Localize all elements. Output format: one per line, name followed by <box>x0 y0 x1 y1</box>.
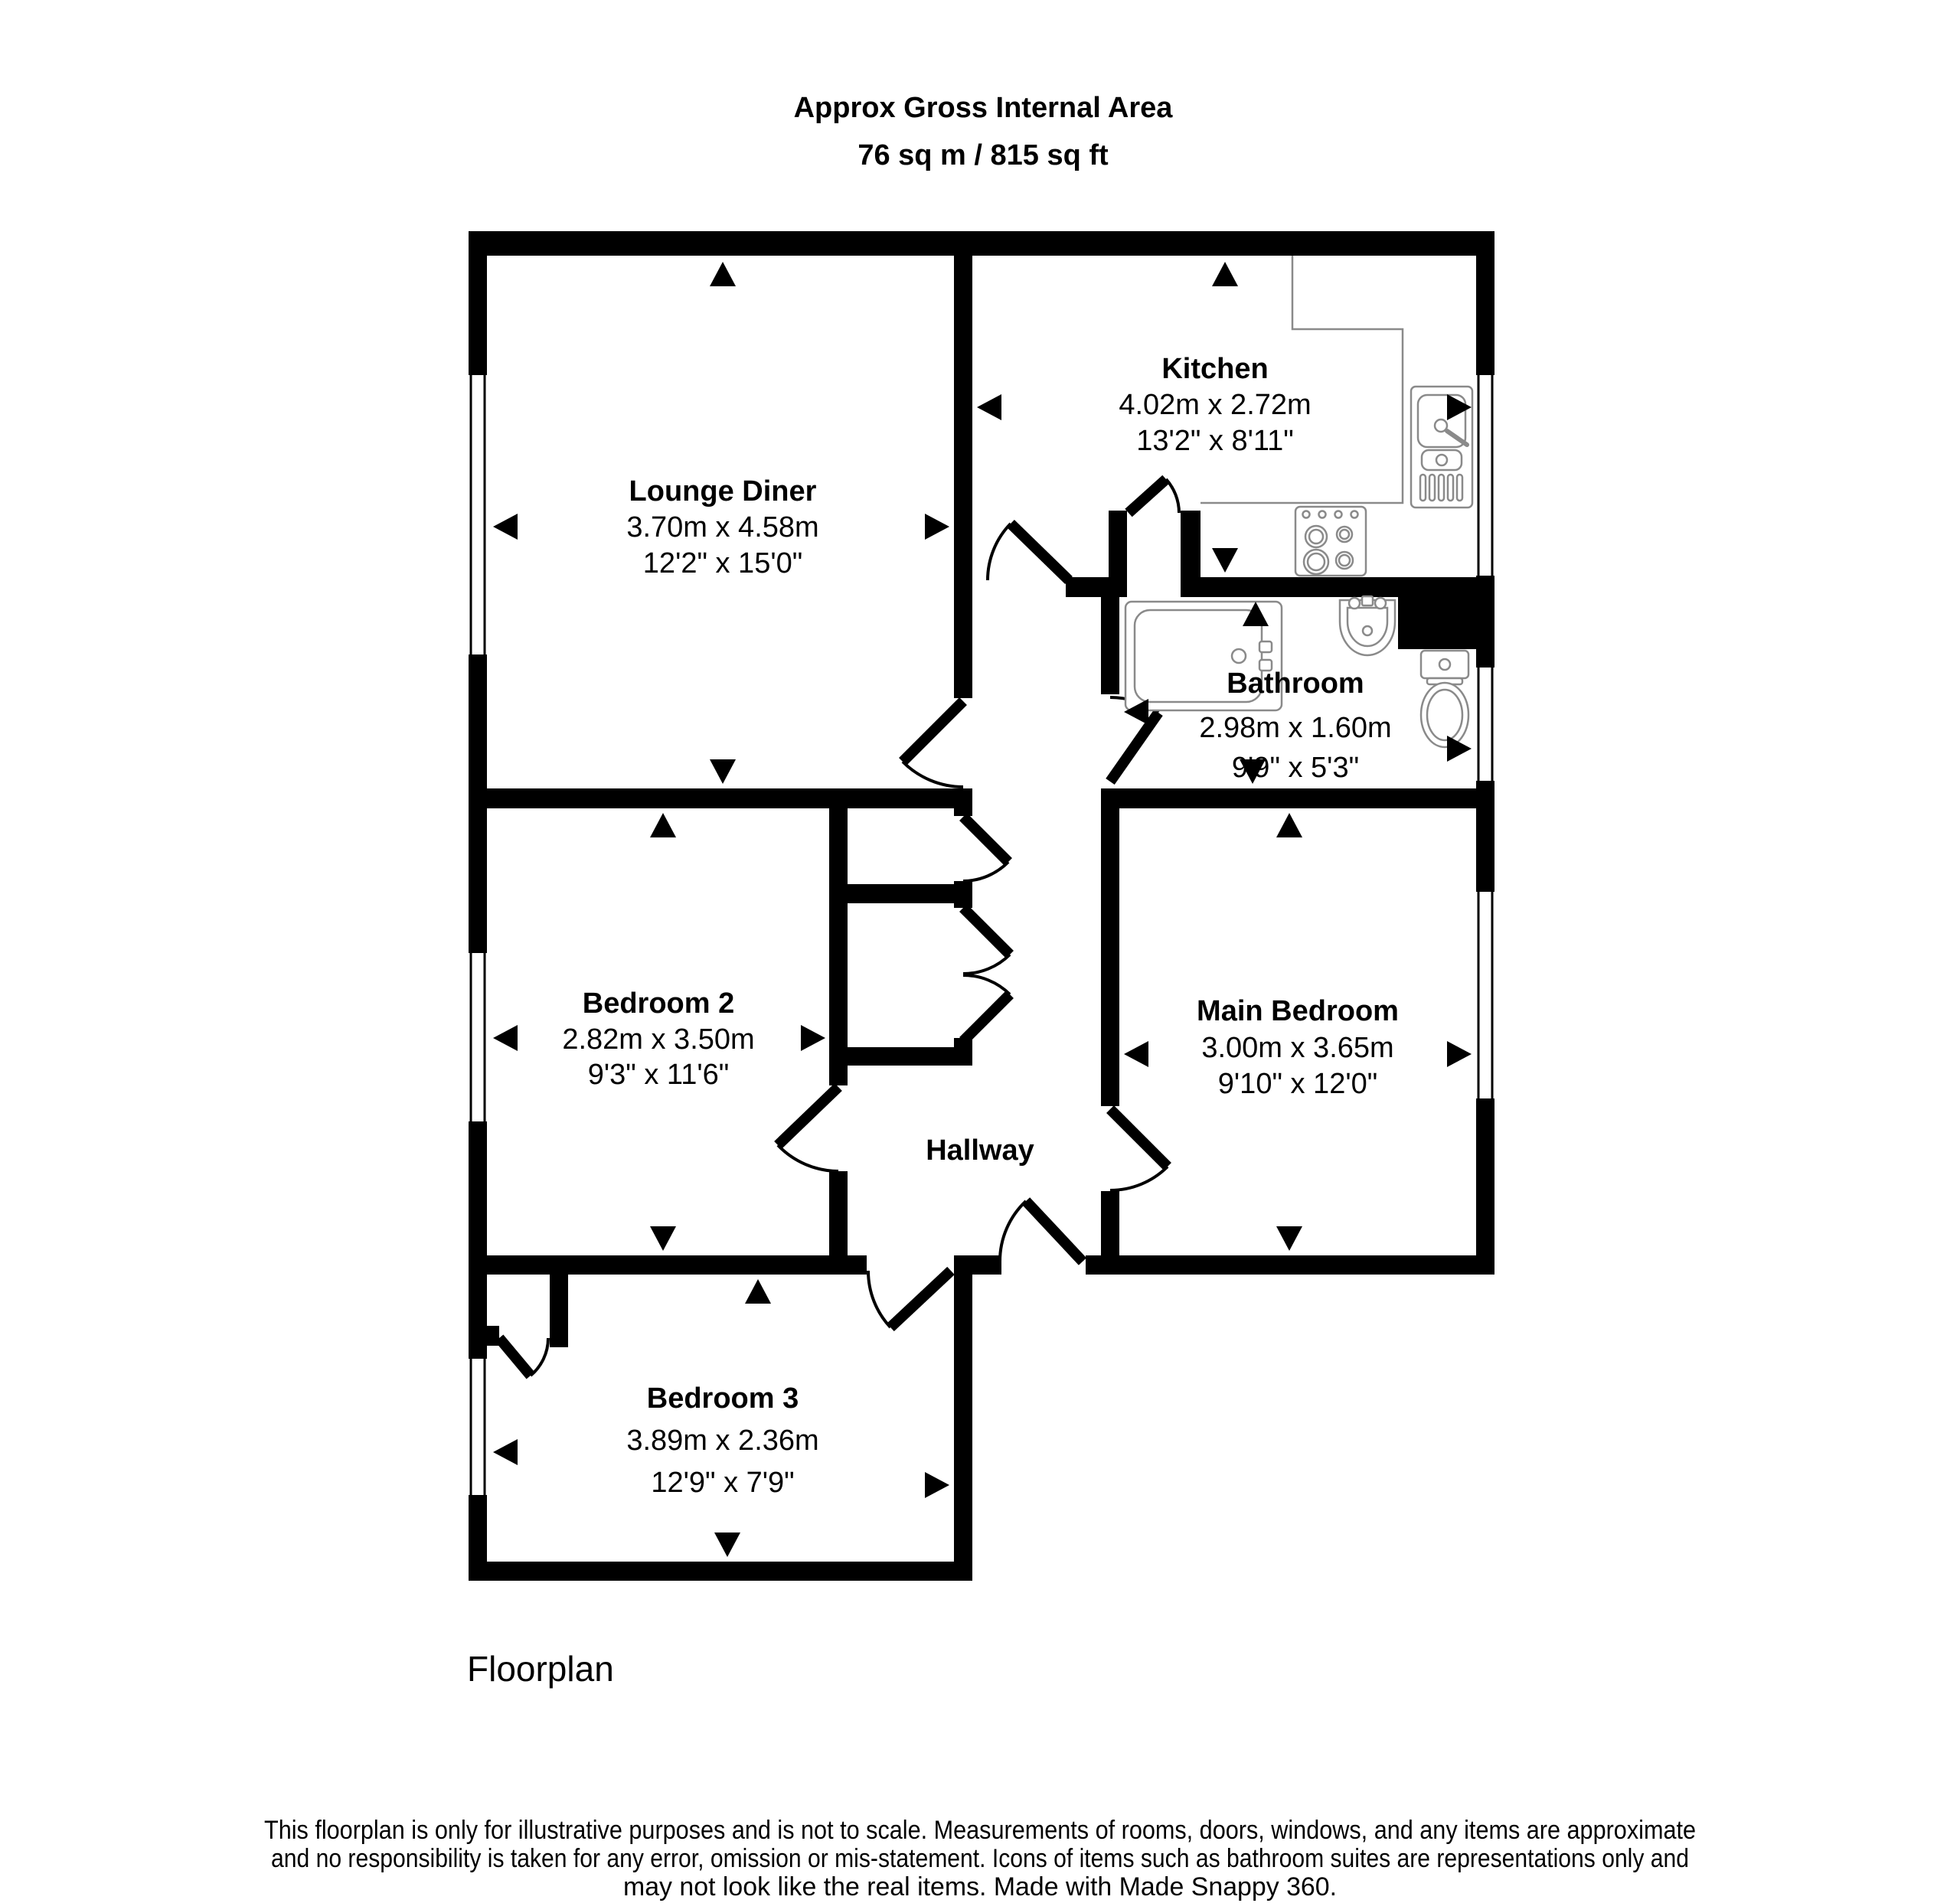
arrow-right-bedroom3 <box>925 1472 949 1498</box>
arrow-right-bedroom2 <box>801 1025 825 1051</box>
arrow-down-bedroom2 <box>650 1226 676 1251</box>
floorplan-canvas: Approx Gross Internal Area 76 sq m / 815… <box>0 0 1960 1903</box>
wall-mainbedroom-west-upper <box>1101 808 1119 1106</box>
room-label-bathroom: Bathroom <box>1227 668 1364 700</box>
window-kitchen <box>1476 375 1494 576</box>
arrow-right-main-bedroom <box>1447 1041 1472 1067</box>
wall-lounge-bottom <box>469 788 972 808</box>
toilet-icon <box>1421 651 1468 747</box>
arrow-left-bedroom2 <box>493 1025 518 1051</box>
room-metric-bathroom: 2.98m x 1.60m <box>1199 712 1391 744</box>
door-kitchen-bathroom-hatch <box>1129 479 1179 513</box>
door-lounge <box>903 701 963 787</box>
page-title-line1: Approx Gross Internal Area <box>794 92 1174 124</box>
arrow-down-bedroom3 <box>714 1533 740 1557</box>
window-main-bedroom <box>1476 892 1494 1098</box>
wall-hatch-stub-right <box>1181 511 1200 597</box>
arrow-down-kitchen <box>1212 548 1238 573</box>
measurement-arrows <box>493 262 1472 1557</box>
room-imperial-bedroom3: 12'9" x 7'9" <box>651 1467 794 1499</box>
wall-closet-jamb-mid <box>954 881 972 908</box>
room-imperial-bedroom2: 9'3" x 11'6" <box>588 1059 729 1091</box>
wall-lounge-kitchen-divider <box>954 256 972 698</box>
wall-bedroom3-closet-stub <box>550 1275 568 1347</box>
arrow-up-main-bedroom <box>1276 813 1302 837</box>
arrow-up-kitchen <box>1212 262 1238 286</box>
door-hall-closet-2-bottom <box>963 975 1010 1041</box>
room-imperial-kitchen: 13'2" x 8'11" <box>1136 425 1294 457</box>
room-metric-lounge-diner: 3.70m x 4.58m <box>626 511 818 543</box>
wall-bathroom-bottom <box>1101 788 1494 808</box>
door-main-bedroom <box>1110 1109 1168 1190</box>
arrow-up-bedroom2 <box>650 813 676 837</box>
door-hall-closet-2-top <box>963 908 1010 974</box>
arrow-left-lounge <box>493 514 518 540</box>
wall-bathroom-duct-block <box>1398 597 1476 649</box>
room-label-main-bedroom: Main Bedroom <box>1197 995 1399 1027</box>
disclaimer-line2: and no responsibility is taken for any e… <box>271 1844 1689 1873</box>
arrow-left-bedroom3 <box>493 1439 518 1465</box>
arrow-left-kitchen <box>977 394 1001 420</box>
door-bedroom3-closet <box>499 1338 548 1376</box>
wall-bedroom2-divider-upper <box>829 808 848 1085</box>
door-kitchen <box>988 524 1069 580</box>
room-imperial-bathroom: 9'9" x 5'3" <box>1232 752 1359 784</box>
room-metric-bedroom3: 3.89m x 2.36m <box>626 1425 818 1457</box>
disclaimer-line3: may not look like the real items. Made w… <box>623 1872 1337 1901</box>
wall-closet-shelf-b <box>829 1047 972 1066</box>
room-label-hallway: Hallway <box>926 1134 1034 1167</box>
door-entrance <box>1000 1201 1083 1262</box>
wall-bedroom23-band <box>469 1255 867 1275</box>
wall-kitchen-bottom-b <box>1200 577 1476 597</box>
arrow-left-main-bedroom <box>1124 1041 1148 1067</box>
wall-mainbedroom-west-lower <box>1101 1191 1119 1255</box>
arrow-up-bedroom3 <box>745 1279 771 1304</box>
room-metric-kitchen: 4.02m x 2.72m <box>1119 389 1311 421</box>
floorplan-caption: Floorplan <box>467 1649 614 1689</box>
room-metric-bedroom2: 2.82m x 3.50m <box>562 1023 754 1056</box>
wall-closet-jamb-top <box>954 808 972 816</box>
room-metric-main-bedroom: 3.00m x 3.65m <box>1201 1032 1393 1064</box>
walls <box>469 231 1494 1581</box>
disclaimer-line1: This floorplan is only for illustrative … <box>264 1816 1696 1845</box>
window-bathroom <box>1476 668 1494 781</box>
wall-bedroom2-divider-lower <box>829 1171 848 1255</box>
window-bedroom2 <box>469 953 487 1121</box>
wall-mainbedroom-bottom <box>1086 1255 1494 1275</box>
window-bedroom3 <box>469 1359 487 1495</box>
wall-bedroom3-bottom <box>469 1562 972 1581</box>
room-imperial-lounge-diner: 12'2" x 15'0" <box>643 547 802 579</box>
door-hall-closet-1 <box>963 817 1008 881</box>
basin-icon <box>1340 596 1395 655</box>
wall-bedroom3-right <box>954 1275 972 1562</box>
window-lounge <box>469 375 487 654</box>
wall-outer-top <box>469 231 1494 256</box>
hob-icon <box>1295 507 1366 576</box>
arrow-down-lounge <box>710 759 736 784</box>
page-title-line2: 76 sq m / 815 sq ft <box>857 139 1109 171</box>
wall-bedroom3-ne-stub <box>954 1255 1001 1275</box>
door-bedroom2 <box>778 1087 838 1171</box>
room-label-kitchen: Kitchen <box>1161 353 1268 385</box>
room-label-lounge-diner: Lounge Diner <box>629 475 817 508</box>
door-bedroom3 <box>868 1271 951 1327</box>
wall-bathroom-west-upper <box>1101 577 1119 694</box>
floorplan-page: Approx Gross Internal Area 76 sq m / 815… <box>0 0 1960 1903</box>
wall-closet-shelf-a <box>829 884 972 903</box>
room-label-bedroom2: Bedroom 2 <box>583 987 734 1020</box>
arrow-up-lounge <box>710 262 736 286</box>
arrow-right-lounge <box>925 514 949 540</box>
room-imperial-main-bedroom: 9'10" x 12'0" <box>1218 1068 1377 1100</box>
arrow-down-main-bedroom <box>1276 1226 1302 1251</box>
room-label-bedroom3: Bedroom 3 <box>647 1382 799 1415</box>
